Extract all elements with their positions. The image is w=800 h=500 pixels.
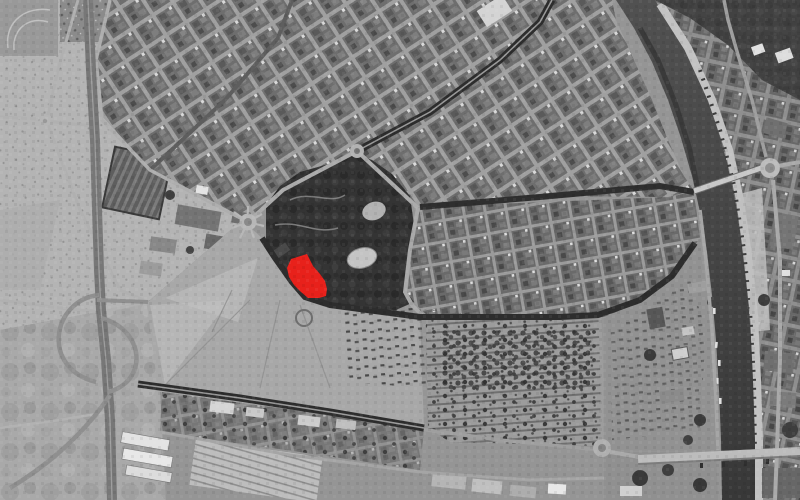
aerial-map-canvas <box>0 0 800 500</box>
photo-grain-overlay <box>0 0 800 500</box>
aerial-map <box>0 0 800 500</box>
